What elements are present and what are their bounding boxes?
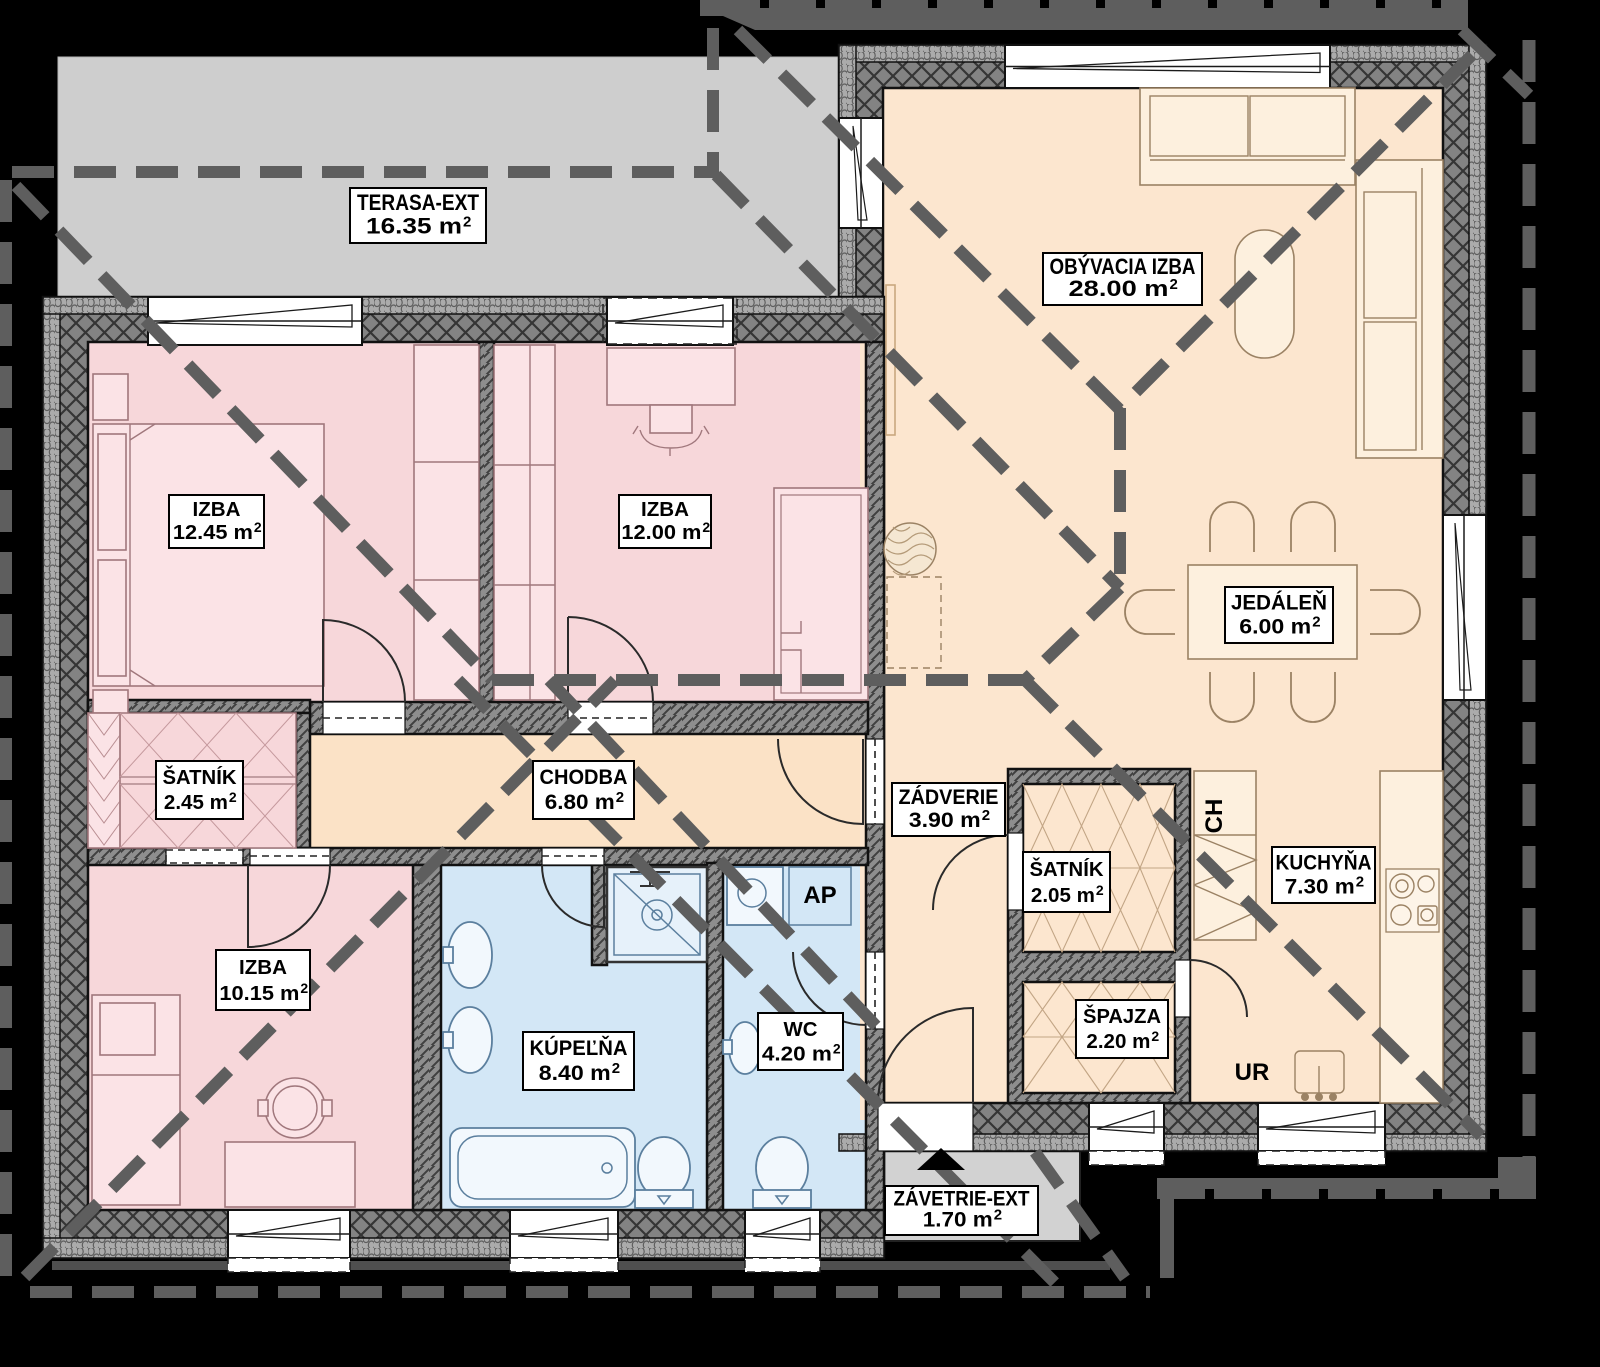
svg-text:ŠATNÍK: ŠATNÍK bbox=[1030, 857, 1105, 881]
svg-text:16.35 m: 16.35 m bbox=[366, 214, 462, 239]
svg-text:2.05 m: 2.05 m bbox=[1031, 885, 1095, 907]
svg-text:2: 2 bbox=[833, 1040, 841, 1056]
svg-text:2: 2 bbox=[1096, 882, 1104, 898]
svg-text:KÚPEĽŇA: KÚPEĽŇA bbox=[530, 1036, 628, 1060]
svg-text:2: 2 bbox=[1356, 873, 1364, 890]
svg-text:7.30 m: 7.30 m bbox=[1285, 875, 1355, 898]
svg-text:2: 2 bbox=[463, 214, 471, 231]
svg-text:2: 2 bbox=[1170, 276, 1178, 293]
svg-text:28.00 m: 28.00 m bbox=[1069, 276, 1169, 301]
svg-text:4.20 m: 4.20 m bbox=[762, 1043, 832, 1065]
svg-text:IZBA: IZBA bbox=[239, 957, 287, 979]
svg-text:TERASA-EXT: TERASA-EXT bbox=[357, 190, 479, 215]
svg-text:2: 2 bbox=[994, 1207, 1002, 1224]
svg-text:6.00 m: 6.00 m bbox=[1239, 615, 1311, 638]
svg-text:JEDÁLEŇ: JEDÁLEŇ bbox=[1231, 590, 1327, 614]
svg-text:2.20 m: 2.20 m bbox=[1086, 1031, 1150, 1053]
svg-text:IZBA: IZBA bbox=[641, 499, 689, 521]
svg-text:ŠATNÍK: ŠATNÍK bbox=[163, 765, 238, 789]
svg-text:8.40 m: 8.40 m bbox=[539, 1062, 611, 1085]
svg-text:2: 2 bbox=[1151, 1028, 1159, 1044]
svg-text:2: 2 bbox=[982, 807, 990, 824]
svg-text:WC: WC bbox=[784, 1019, 818, 1041]
svg-text:2: 2 bbox=[229, 789, 237, 805]
svg-text:ZÁDVERIE: ZÁDVERIE bbox=[899, 786, 999, 809]
svg-text:2: 2 bbox=[300, 980, 308, 996]
svg-text:6.80 m: 6.80 m bbox=[545, 791, 615, 814]
svg-text:2.45 m: 2.45 m bbox=[164, 792, 228, 814]
svg-text:2: 2 bbox=[702, 519, 710, 535]
svg-text:AP: AP bbox=[803, 882, 836, 909]
svg-text:CHODBA: CHODBA bbox=[540, 766, 628, 789]
svg-text:12.45 m: 12.45 m bbox=[173, 522, 253, 544]
svg-text:2: 2 bbox=[254, 519, 262, 535]
svg-text:2: 2 bbox=[1312, 613, 1320, 630]
svg-text:KUCHYŇA: KUCHYŇA bbox=[1276, 850, 1372, 874]
svg-text:2: 2 bbox=[616, 789, 624, 806]
svg-text:10.15 m: 10.15 m bbox=[219, 983, 299, 1005]
svg-text:IZBA: IZBA bbox=[193, 499, 241, 521]
svg-text:3.90 m: 3.90 m bbox=[909, 809, 981, 832]
svg-text:ŠPAJZA: ŠPAJZA bbox=[1083, 1004, 1161, 1028]
svg-text:2: 2 bbox=[612, 1060, 620, 1077]
svg-text:1.70 m: 1.70 m bbox=[923, 1209, 993, 1232]
svg-text:CH: CH bbox=[1201, 799, 1228, 834]
svg-text:OBÝVACIA IZBA: OBÝVACIA IZBA bbox=[1050, 254, 1196, 279]
svg-text:UR: UR bbox=[1235, 1059, 1270, 1086]
svg-text:12.00 m: 12.00 m bbox=[621, 522, 701, 544]
svg-text:ZÁVETRIE-EXT: ZÁVETRIE-EXT bbox=[894, 1188, 1030, 1211]
